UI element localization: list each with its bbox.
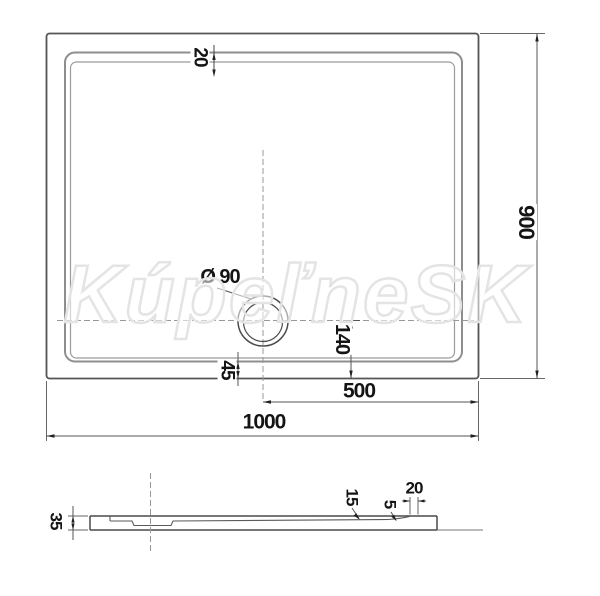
section-floor-profile <box>110 516 410 526</box>
section-slope-label: 5 <box>382 499 399 509</box>
dimension-section-height-35 <box>68 506 88 540</box>
drain-to-edge-label: 500 <box>342 381 376 402</box>
dimension-section-20 <box>402 497 426 515</box>
dimension-section-15 <box>352 508 360 520</box>
section-profile-outline <box>90 516 437 530</box>
top-view-drawing <box>47 34 546 442</box>
technical-drawing-page: 20 900 Ø 90 140 45 500 1000 35 15 5 20 K… <box>0 0 600 596</box>
drain-offset-label: 140 <box>332 323 352 355</box>
section-height-label: 35 <box>48 512 65 531</box>
width-label: 1000 <box>242 412 287 433</box>
section-edge-width-label: 20 <box>405 480 424 497</box>
drain-diameter-label: Ø 90 <box>199 267 240 287</box>
height-label: 900 <box>515 204 537 240</box>
rim-to-edge-label: 45 <box>218 359 237 380</box>
drain-leader-line <box>217 288 251 299</box>
dimension-rim-width <box>212 45 215 77</box>
section-floor-depth-label: 15 <box>344 488 361 507</box>
rim-width-label: 20 <box>191 46 210 67</box>
shower-tray-drawing <box>0 0 600 596</box>
